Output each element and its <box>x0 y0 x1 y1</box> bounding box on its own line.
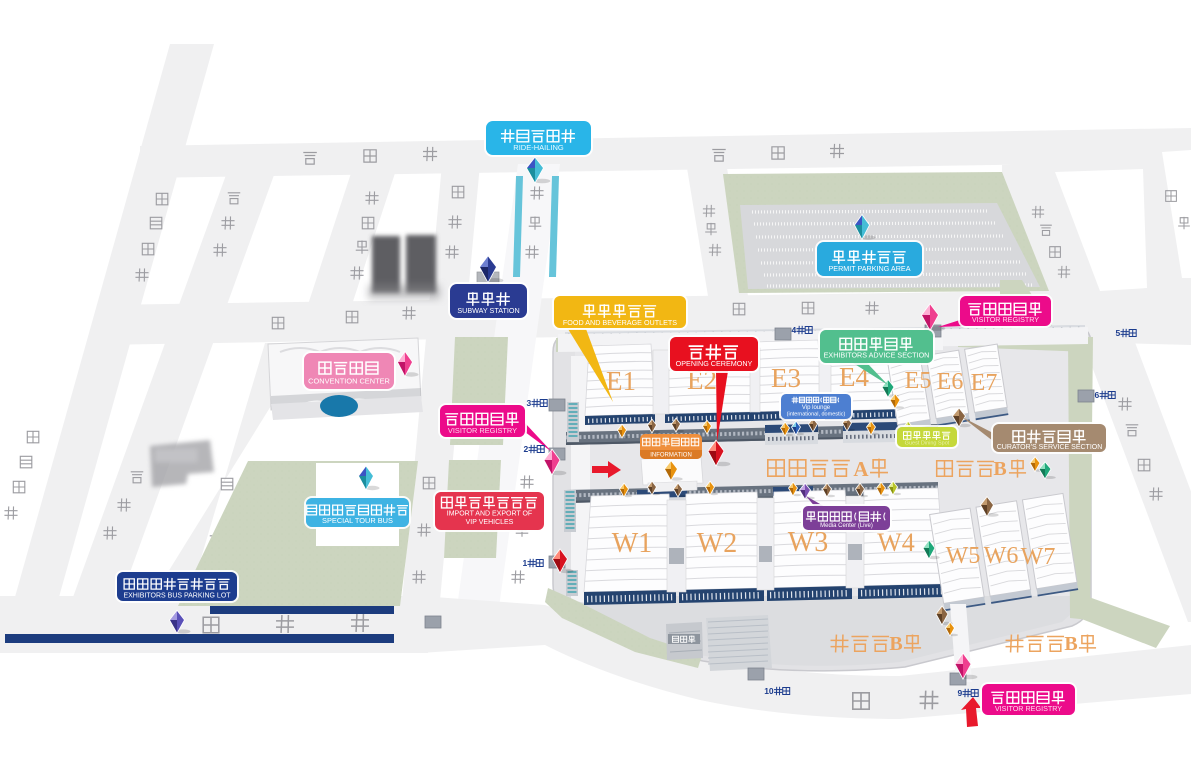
svg-text:E5: E5 <box>905 368 932 394</box>
svg-text:VISITOR REGISTRY: VISITOR REGISTRY <box>995 704 1062 713</box>
svg-text:FOOD AND BEVERAGE OUTLETS: FOOD AND BEVERAGE OUTLETS <box>563 318 677 327</box>
svg-text:B: B <box>1064 633 1077 655</box>
svg-text:Vip lounge: Vip lounge <box>802 405 831 411</box>
svg-text:RIDE-HAILING: RIDE-HAILING <box>513 143 564 152</box>
svg-text:CONVENTION CENTER: CONVENTION CENTER <box>308 377 390 386</box>
svg-text:B: B <box>889 633 902 655</box>
svg-text:IMPORT AND EXPORT OF: IMPORT AND EXPORT OF <box>447 510 532 517</box>
svg-text:W5: W5 <box>946 543 981 569</box>
svg-text:E7: E7 <box>971 370 998 396</box>
svg-text:VISITOR REGISTRY: VISITOR REGISTRY <box>448 426 517 435</box>
svg-text:1: 1 <box>523 558 528 568</box>
svg-text:5: 5 <box>1116 328 1121 338</box>
svg-text:VISITOR REGISTRY: VISITOR REGISTRY <box>972 315 1039 324</box>
svg-text:W6: W6 <box>984 543 1019 569</box>
svg-text:EXHIBITORS ADVICE SECTION: EXHIBITORS ADVICE SECTION <box>824 351 930 360</box>
svg-text:CURATOR'S SERVICE SECTION: CURATOR'S SERVICE SECTION <box>997 444 1103 451</box>
svg-text:Media Center (Live): Media Center (Live) <box>820 523 873 529</box>
svg-text:W4: W4 <box>877 528 915 557</box>
svg-text:OPENING CEREMONY: OPENING CEREMONY <box>676 359 753 368</box>
svg-text:4: 4 <box>792 325 797 335</box>
svg-text:W1: W1 <box>612 528 652 559</box>
svg-text:9: 9 <box>958 688 963 698</box>
svg-text:(international, domestic): (international, domestic) <box>787 411 846 417</box>
svg-text:SPECIAL TOUR BUS: SPECIAL TOUR BUS <box>322 516 393 525</box>
svg-text:W2: W2 <box>697 528 737 559</box>
svg-text:6: 6 <box>1095 390 1100 400</box>
svg-text:10: 10 <box>764 686 774 696</box>
svg-text:VIP VEHICLES: VIP VEHICLES <box>466 519 514 526</box>
svg-text:W7: W7 <box>1021 544 1056 570</box>
svg-text:PERMIT PARKING AREA: PERMIT PARKING AREA <box>828 264 910 273</box>
svg-text:E1: E1 <box>606 366 636 396</box>
svg-text:B: B <box>993 458 1006 480</box>
svg-text:A: A <box>853 457 869 481</box>
svg-text:E6: E6 <box>937 369 964 395</box>
svg-text:SUBWAY STATION: SUBWAY STATION <box>457 306 519 315</box>
svg-text:EXHIBITORS BUS PARKING LOT: EXHIBITORS BUS PARKING LOT <box>123 592 231 599</box>
svg-text:INFORMATION: INFORMATION <box>650 453 692 459</box>
svg-text:Guest Dining Spot: Guest Dining Spot <box>905 440 950 446</box>
svg-text:E3: E3 <box>771 363 801 393</box>
svg-text:2: 2 <box>524 444 529 454</box>
svg-text:3: 3 <box>527 398 532 408</box>
